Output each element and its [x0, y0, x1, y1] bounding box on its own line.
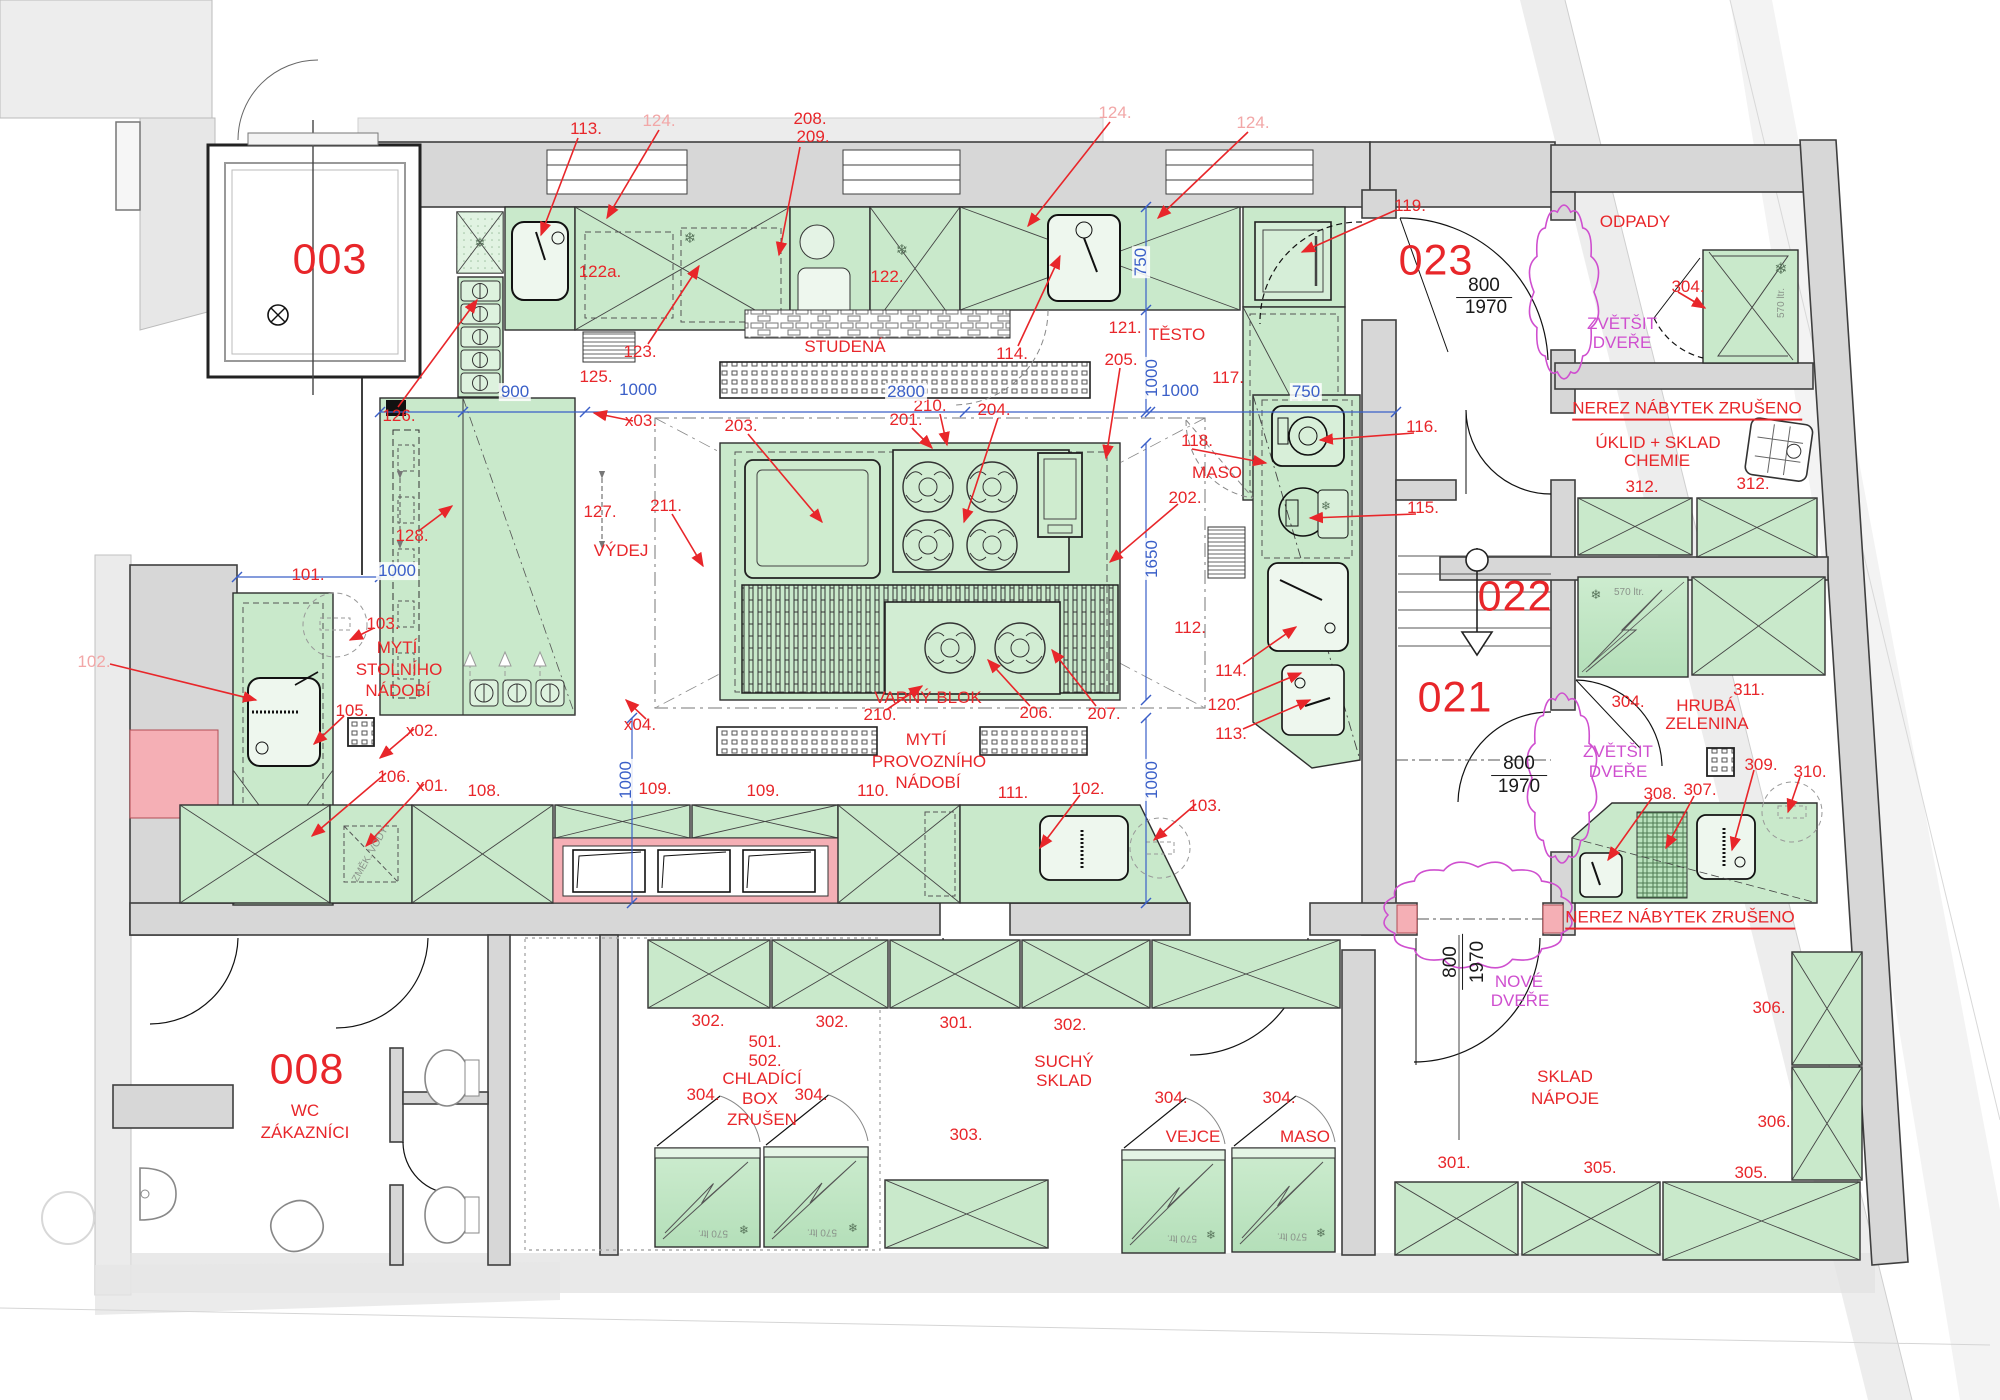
equipment-note-570-ltr: 570 ltr. — [1777, 288, 1788, 318]
label-306: 306. — [1757, 1113, 1790, 1131]
label-106: 106. — [377, 768, 410, 786]
room-number-003: 003 — [293, 237, 368, 282]
dimension-1000: 1000 — [617, 759, 635, 801]
label-hrub: HRUBÁ — [1676, 697, 1736, 715]
label-maso: MASO — [1192, 464, 1242, 482]
label-310: 310. — [1793, 763, 1826, 781]
label-109: 109. — [746, 782, 779, 800]
label-zelenina: ZELENINA — [1665, 715, 1748, 733]
label-308: 308. — [1643, 785, 1676, 803]
door-dimension-800: 800 — [1456, 276, 1512, 298]
label-wc: WC — [291, 1102, 319, 1120]
label-109: 109. — [638, 780, 671, 798]
label-312: 312. — [1736, 475, 1769, 493]
label-302: 302. — [815, 1013, 848, 1031]
label-studen: STUDENÁ — [804, 338, 885, 356]
label-309: 309. — [1744, 756, 1777, 774]
label-t-sto: TĚSTO — [1149, 326, 1205, 344]
room-number-008: 008 — [270, 1047, 345, 1092]
equipment-note-570-ltr: 570 ltr. — [807, 1226, 837, 1237]
door-dimension-1970: 1970 — [1465, 298, 1507, 318]
label-210: 210. — [913, 397, 946, 415]
room-number-021: 021 — [1418, 675, 1493, 720]
label-101: 101. — [291, 566, 324, 584]
dimension-900: 900 — [499, 383, 531, 401]
label-v-dej: VÝDEJ — [594, 542, 649, 560]
revision-label-dve-e: DVEŘE — [1491, 992, 1550, 1010]
door-dimension-800: 800 — [1491, 754, 1547, 776]
label-chemie: CHEMIE — [1624, 452, 1690, 470]
label-sklad: SKLAD — [1537, 1068, 1593, 1086]
dimension-750: 750 — [1132, 246, 1150, 278]
label-102: 102. — [1071, 780, 1104, 798]
label-304: 304. — [1671, 278, 1704, 296]
label-122: 122. — [870, 268, 903, 286]
label-sklad: SKLAD — [1036, 1072, 1092, 1090]
label-klid-sklad: ÚKLID + SKLAD — [1595, 434, 1720, 452]
label-faded-102: 102. — [77, 653, 110, 671]
label-122a: 122a. — [579, 263, 622, 281]
label-faded-124: 124. — [1098, 104, 1131, 122]
revision-label-nov: NOVÉ — [1495, 973, 1543, 991]
annotation-layer: 003023022021008113.208.209.119.122a.122.… — [0, 0, 2000, 1400]
label-114: 114. — [1215, 662, 1247, 680]
label-provozn-ho: PROVOZNÍHO — [872, 753, 986, 771]
label-204: 204. — [977, 401, 1010, 419]
label-x04: x04. — [624, 716, 656, 734]
label-208: 208. — [793, 110, 826, 128]
label-210: 210. — [863, 706, 896, 724]
label-304: 304. — [686, 1086, 719, 1104]
label-128: 128. — [395, 527, 428, 545]
label-304: 304. — [1154, 1089, 1187, 1107]
label-301: 301. — [1437, 1154, 1470, 1172]
label-maso: MASO — [1280, 1128, 1330, 1146]
equipment-note-570-ltr: 570 ltr. — [1277, 1230, 1307, 1241]
floor-plan: ❄❄❄❄❄❄❄❄❄❄ 003023022021008113.208.209.11… — [0, 0, 2000, 1400]
label-123: 123. — [623, 343, 656, 361]
label-myt: MYTÍ — [906, 731, 947, 749]
label-116: 116. — [1406, 418, 1438, 436]
label-n-dob: NÁDOBÍ — [895, 774, 960, 792]
label-faded-124: 124. — [642, 112, 675, 130]
label-117: 117. — [1212, 369, 1244, 387]
label-121: 121. — [1108, 319, 1141, 337]
revision-note-nerez-n-bytek-zru-eno: NEREZ NÁBYTEK ZRUŠENO — [1565, 909, 1795, 930]
label-stoln-ho: STOLNÍHO — [356, 661, 443, 679]
dimension-1000: 1000 — [1159, 382, 1201, 400]
label-209: 209. — [796, 128, 829, 146]
label-118: 118. — [1181, 432, 1213, 450]
dimension-1000: 1000 — [1143, 759, 1161, 801]
label-105: 105. — [335, 702, 368, 720]
label-n-poje: NÁPOJE — [1531, 1090, 1599, 1108]
equipment-note-zm-k-vody: ZMĚK. VODY — [351, 826, 391, 885]
door-dimension-800: 800 — [1441, 934, 1463, 990]
label-211: 211. — [650, 497, 682, 515]
label-chlad-c: CHLADÍCÍ — [722, 1070, 801, 1088]
label-126: 126. — [382, 407, 415, 425]
label-x03: x03. — [625, 412, 657, 430]
label-119: 119. — [1394, 197, 1426, 215]
label-odpady: ODPADY — [1600, 213, 1671, 231]
revision-note-nerez-n-bytek-zru-eno: NEREZ NÁBYTEK ZRUŠENO — [1572, 400, 1802, 421]
label-307: 307. — [1683, 781, 1716, 799]
label-302: 302. — [1053, 1016, 1086, 1034]
label-120: 120. — [1207, 696, 1240, 714]
label-box: BOX — [742, 1090, 778, 1108]
room-number-022: 022 — [1478, 574, 1553, 619]
label-125: 125. — [579, 368, 612, 386]
label-305: 305. — [1583, 1159, 1616, 1177]
label-myt: MYTÍ — [377, 639, 418, 657]
label-305: 305. — [1734, 1164, 1767, 1182]
label-127: 127. — [583, 503, 616, 521]
label-203: 203. — [724, 417, 757, 435]
label-115: 115. — [1407, 499, 1439, 517]
door-dimension-1970: 1970 — [1468, 941, 1488, 983]
label-205: 205. — [1104, 351, 1137, 369]
dimension-750: 750 — [1290, 383, 1322, 401]
label-110: 110. — [857, 782, 889, 800]
label-zru-en: ZRUŠEN — [727, 1111, 797, 1129]
label-302: 302. — [691, 1012, 724, 1030]
label-304: 304. — [794, 1086, 827, 1104]
label-113: 113. — [570, 120, 602, 138]
label-306: 306. — [1752, 999, 1785, 1017]
label-112: 112. — [1174, 619, 1206, 637]
label-114: 114. — [996, 345, 1028, 363]
revision-label-zv-t-it: ZVĚTŠIT — [1583, 743, 1653, 761]
label-207: 207. — [1087, 705, 1120, 723]
label-108: 108. — [467, 782, 500, 800]
label-312: 312. — [1625, 478, 1658, 496]
label-varn-blok: VARNÝ BLOK — [874, 689, 981, 707]
label-x02: x02. — [406, 722, 438, 740]
label-501: 501. — [748, 1033, 781, 1051]
label-311: 311. — [1733, 681, 1765, 699]
equipment-note-570-ltr: 570 ltr. — [1614, 588, 1644, 599]
label-such: SUCHÝ — [1034, 1053, 1094, 1071]
revision-label-zv-t-it: ZVĚTŠIT — [1587, 315, 1657, 333]
label-103: 103. — [366, 615, 399, 633]
revision-label-dve-e: DVEŘE — [1593, 334, 1652, 352]
label-202: 202. — [1168, 489, 1201, 507]
label-301: 301. — [939, 1014, 972, 1032]
label-201: 201. — [889, 411, 922, 429]
dimension-1000: 1000 — [1143, 357, 1161, 399]
label-x01: x01. — [416, 777, 448, 795]
dimension-1000: 1000 — [617, 381, 659, 399]
room-number-023: 023 — [1399, 238, 1474, 283]
label-304: 304. — [1611, 693, 1644, 711]
label-206: 206. — [1019, 704, 1052, 722]
label-113: 113. — [1215, 725, 1247, 743]
dimension-1000: 1000 — [376, 562, 418, 580]
label-111: 111. — [998, 784, 1029, 802]
label-z-kazn-ci: ZÁKAZNÍCI — [261, 1124, 350, 1142]
equipment-note-570-ltr: 570 ltr. — [698, 1227, 728, 1238]
label-n-dob: NÁDOBÍ — [365, 682, 430, 700]
revision-label-dve-e: DVEŘE — [1589, 763, 1648, 781]
dimension-2800: 2800 — [885, 383, 927, 401]
equipment-note-570-ltr: 570 ltr. — [1167, 1232, 1197, 1243]
label-vejce: VEJCE — [1166, 1128, 1221, 1146]
label-304: 304. — [1262, 1089, 1295, 1107]
door-dimension-1970: 1970 — [1498, 777, 1540, 797]
label-faded-124: 124. — [1236, 114, 1269, 132]
dimension-1650: 1650 — [1143, 538, 1161, 580]
label-303: 303. — [949, 1126, 982, 1144]
label-502: 502. — [748, 1052, 781, 1070]
label-103: 103. — [1188, 797, 1221, 815]
